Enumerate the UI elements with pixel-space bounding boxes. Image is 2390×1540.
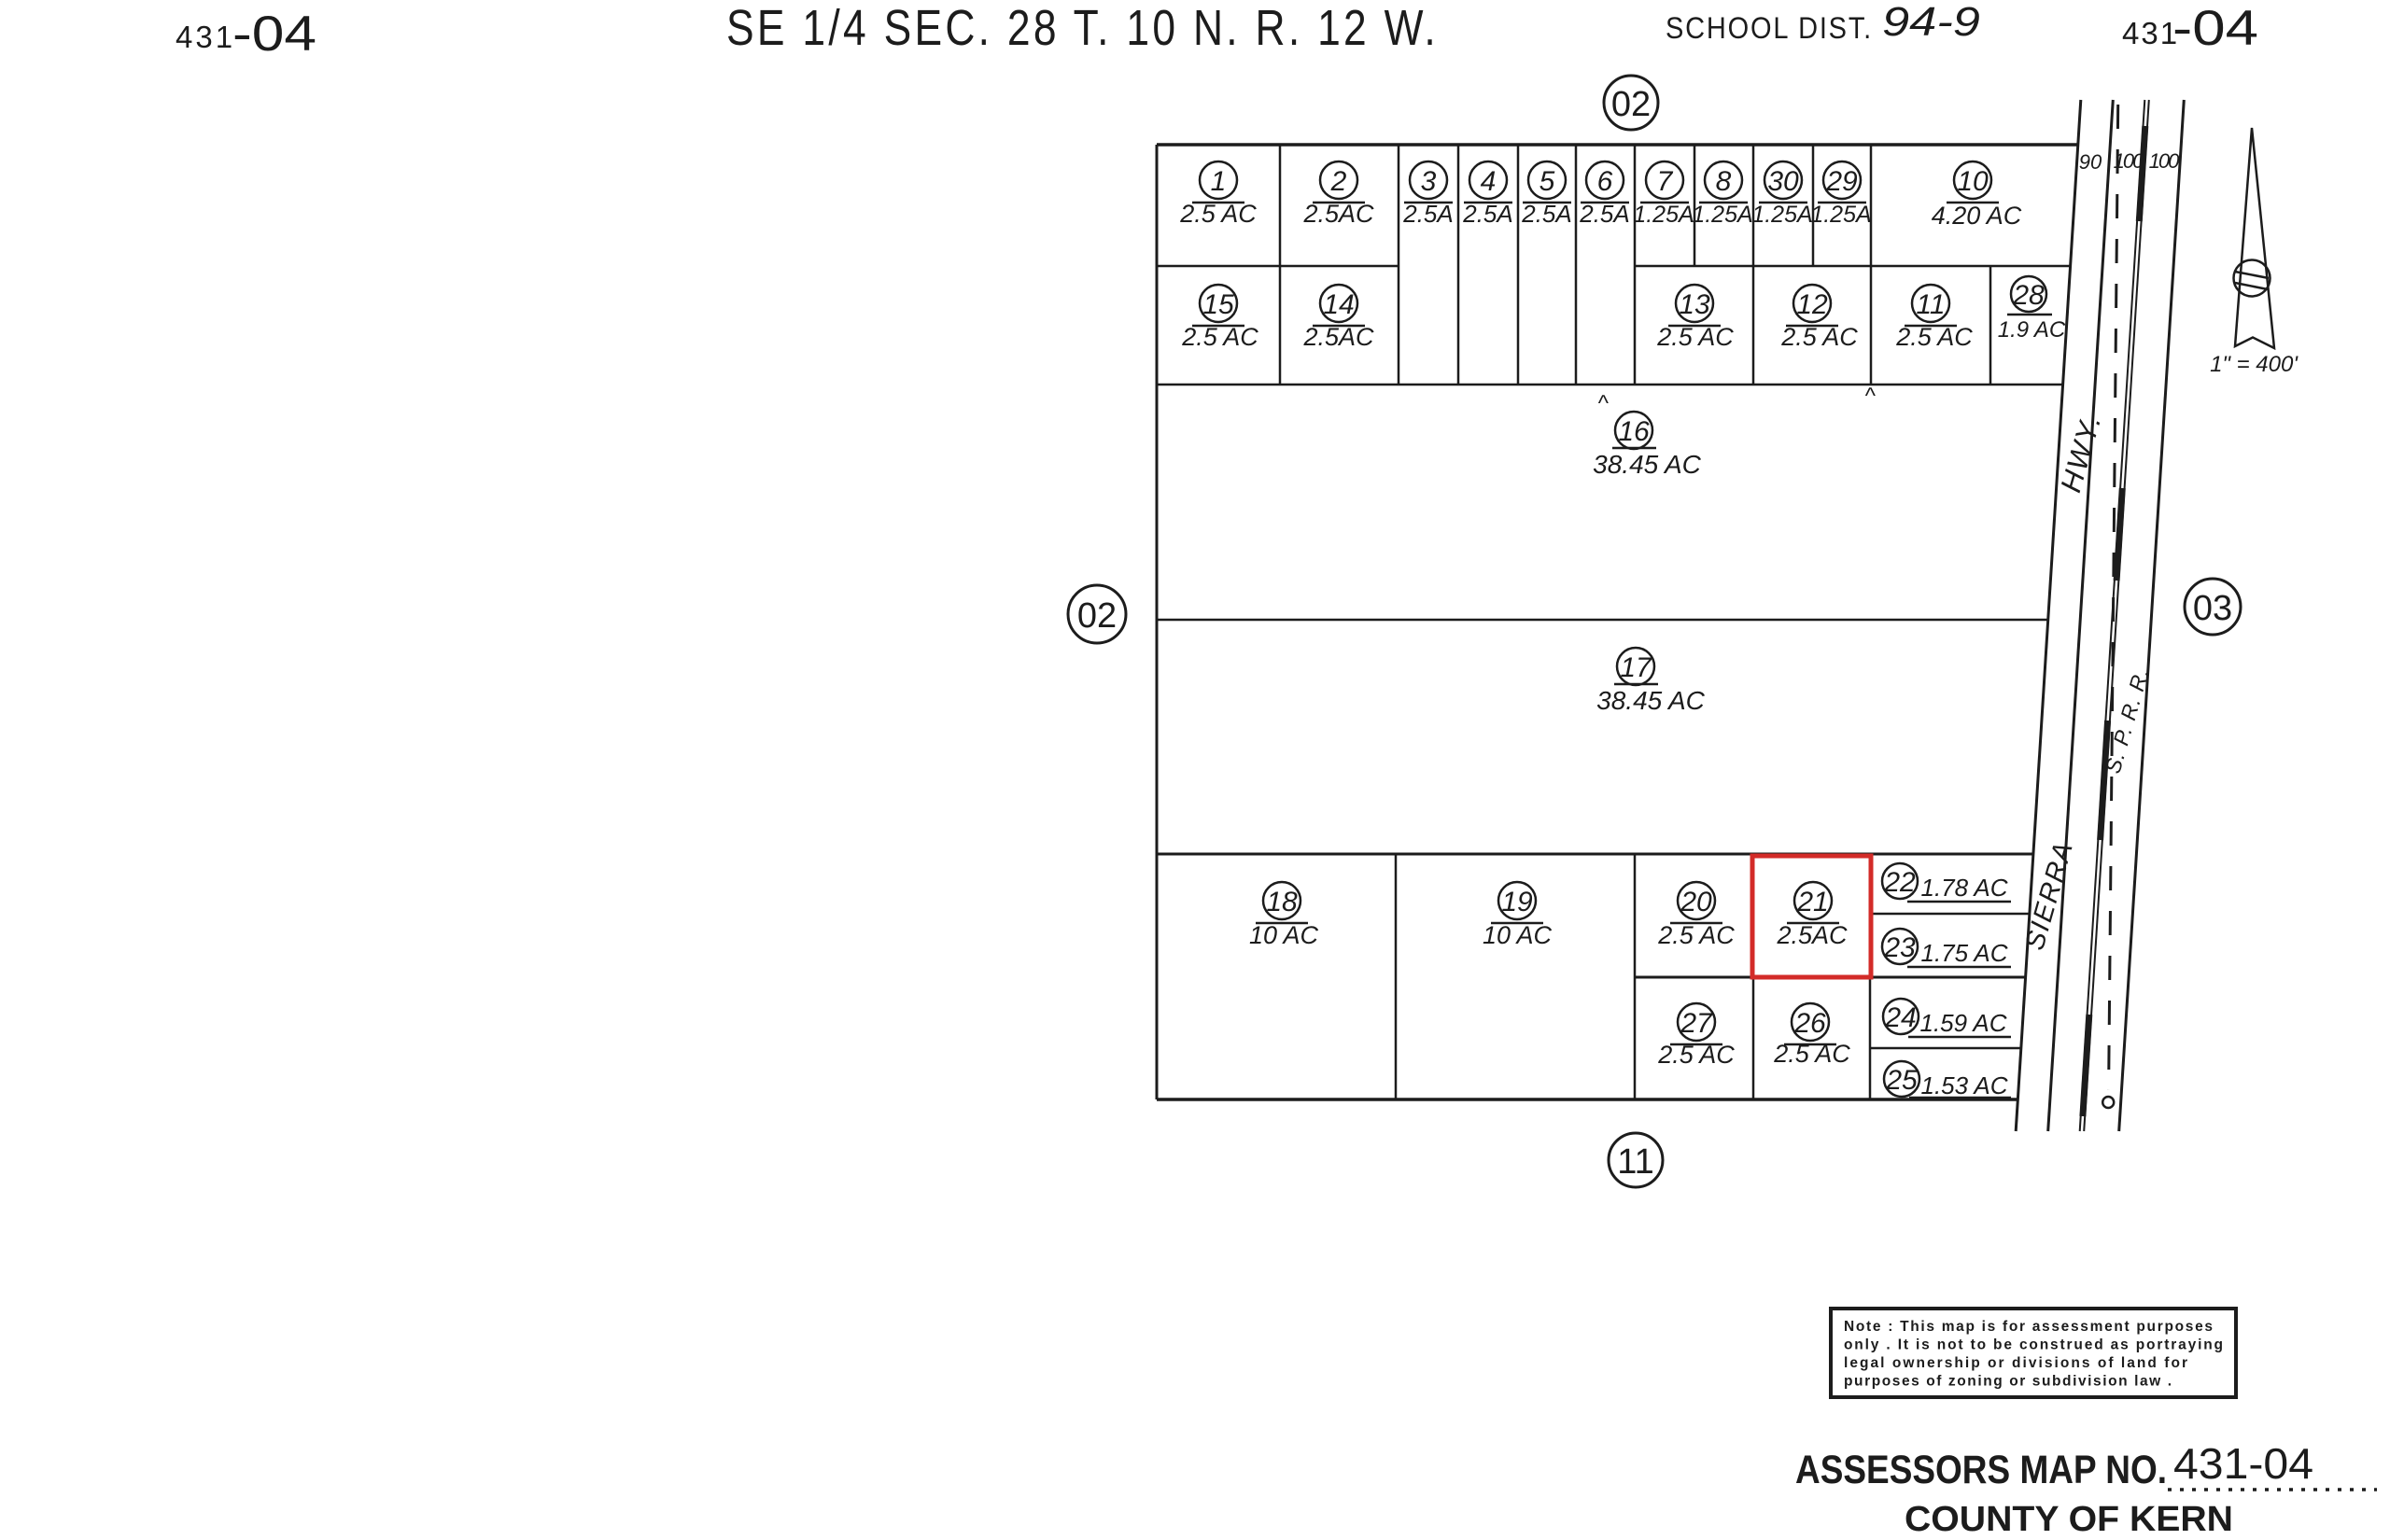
svg-text:10: 10 xyxy=(1957,166,1989,197)
svg-text:20: 20 xyxy=(1680,887,1712,917)
svg-text:25: 25 xyxy=(1885,1065,1918,1096)
svg-text:11: 11 xyxy=(1617,1142,1653,1182)
svg-text:28: 28 xyxy=(2012,280,2045,311)
svg-text:Note : This map is for assessm: Note : This map is for assessment purpos… xyxy=(1844,1319,2213,1335)
svg-text:1.25A: 1.25A xyxy=(1633,202,1694,228)
svg-text:only . It is not to be constru: only . It is not to be construed as port… xyxy=(1844,1337,2223,1353)
svg-text:94-9: 94-9 xyxy=(1882,0,1980,45)
svg-text:10 AC: 10 AC xyxy=(1249,921,1319,949)
svg-text:11: 11 xyxy=(1916,289,1945,320)
svg-text:90: 90 xyxy=(2079,150,2102,174)
svg-text:1.9 AC: 1.9 AC xyxy=(1998,317,2066,343)
svg-text:7: 7 xyxy=(1657,166,1674,197)
svg-text:^: ^ xyxy=(1597,391,1609,416)
svg-text:6: 6 xyxy=(1597,166,1613,197)
svg-text:COUNTY OF KERN: COUNTY OF KERN xyxy=(1905,1500,2233,1535)
svg-text:1.59 AC: 1.59 AC xyxy=(1920,1009,2007,1037)
svg-text:19: 19 xyxy=(1501,887,1533,917)
svg-text:1" = 400': 1" = 400' xyxy=(2210,352,2299,377)
svg-text:18: 18 xyxy=(1266,887,1298,917)
svg-text:8: 8 xyxy=(1716,166,1732,197)
svg-text:26: 26 xyxy=(1793,1008,1826,1039)
svg-text:2.5A: 2.5A xyxy=(1402,200,1454,228)
svg-text:431: 431 xyxy=(176,20,235,54)
svg-text:-04: -04 xyxy=(2172,1,2258,56)
svg-text:2.5 AC: 2.5 AC xyxy=(1657,1041,1735,1069)
svg-text:38.45 AC: 38.45 AC xyxy=(1596,686,1705,715)
svg-text:2.5 AC: 2.5 AC xyxy=(1656,323,1734,351)
svg-text:15: 15 xyxy=(1202,289,1234,320)
svg-text:2.5 AC: 2.5 AC xyxy=(1780,323,1858,351)
svg-text:23: 23 xyxy=(1883,932,1916,963)
svg-text:431: 431 xyxy=(2122,16,2179,50)
svg-text:4.20 AC: 4.20 AC xyxy=(1932,202,2022,230)
svg-text:16: 16 xyxy=(1618,416,1650,447)
svg-text:ASSESSORS MAP NO.: ASSESSORS MAP NO. xyxy=(1795,1448,2167,1492)
svg-text:2.5A: 2.5A xyxy=(1521,200,1572,228)
svg-text:29: 29 xyxy=(1825,166,1858,197)
svg-text:2.5AC: 2.5AC xyxy=(1776,921,1848,949)
svg-text:2.5 AC: 2.5 AC xyxy=(1773,1040,1850,1068)
svg-text:12: 12 xyxy=(1796,289,1828,320)
svg-text:4: 4 xyxy=(1481,166,1497,197)
svg-text:14: 14 xyxy=(1323,289,1354,320)
svg-text:1.75 AC: 1.75 AC xyxy=(1921,939,2008,967)
svg-text:38.45 AC: 38.45 AC xyxy=(1593,450,1701,479)
svg-text:SCHOOL DIST.: SCHOOL DIST. xyxy=(1666,11,1873,45)
svg-text:02: 02 xyxy=(1611,85,1651,124)
svg-text:SE 1/4 SEC. 28 T. 10 N. R. 12: SE 1/4 SEC. 28 T. 10 N. R. 12 W. xyxy=(726,0,1439,56)
svg-text:30: 30 xyxy=(1767,166,1799,197)
svg-text:2: 2 xyxy=(1330,166,1347,197)
svg-text:2.5 AC: 2.5 AC xyxy=(1895,323,1973,351)
svg-text:1.25A: 1.25A xyxy=(1751,202,1812,228)
svg-text:1.53 AC: 1.53 AC xyxy=(1921,1071,2008,1099)
svg-text:2.5AC: 2.5AC xyxy=(1302,200,1374,228)
svg-text:27: 27 xyxy=(1680,1008,1713,1039)
svg-text:24: 24 xyxy=(1884,1002,1916,1033)
svg-text:2.5A: 2.5A xyxy=(1462,200,1513,228)
svg-text:1: 1 xyxy=(1211,166,1227,197)
svg-text:5: 5 xyxy=(1539,166,1555,197)
svg-text:22: 22 xyxy=(1883,867,1916,898)
svg-text:17: 17 xyxy=(1620,652,1652,683)
svg-text:21: 21 xyxy=(1796,887,1828,917)
svg-text:^: ^ xyxy=(1864,384,1876,409)
svg-text:1.78 AC: 1.78 AC xyxy=(1921,874,2008,902)
svg-text:02: 02 xyxy=(1077,596,1117,636)
svg-text:purposes of zoning or subdivis: purposes of zoning or subdivision law . xyxy=(1844,1374,2172,1390)
svg-text:2.5A: 2.5A xyxy=(1579,200,1630,228)
svg-text:2.5 AC: 2.5 AC xyxy=(1181,323,1258,351)
svg-text:100: 100 xyxy=(2149,149,2180,173)
svg-text:2.5 AC: 2.5 AC xyxy=(1179,200,1257,228)
svg-text:2.5 AC: 2.5 AC xyxy=(1657,921,1735,949)
svg-text:1.25A: 1.25A xyxy=(1692,202,1752,228)
svg-text:431-04: 431-04 xyxy=(2173,1439,2313,1488)
svg-text:1.25A: 1.25A xyxy=(1810,202,1871,228)
svg-text:100: 100 xyxy=(2114,149,2144,173)
svg-text:2.5AC: 2.5AC xyxy=(1302,323,1374,351)
svg-text:3: 3 xyxy=(1421,166,1437,197)
svg-text:03: 03 xyxy=(2193,589,2232,628)
svg-text:-04: -04 xyxy=(232,7,316,62)
svg-text:13: 13 xyxy=(1679,289,1710,320)
svg-text:10 AC: 10 AC xyxy=(1483,921,1553,949)
